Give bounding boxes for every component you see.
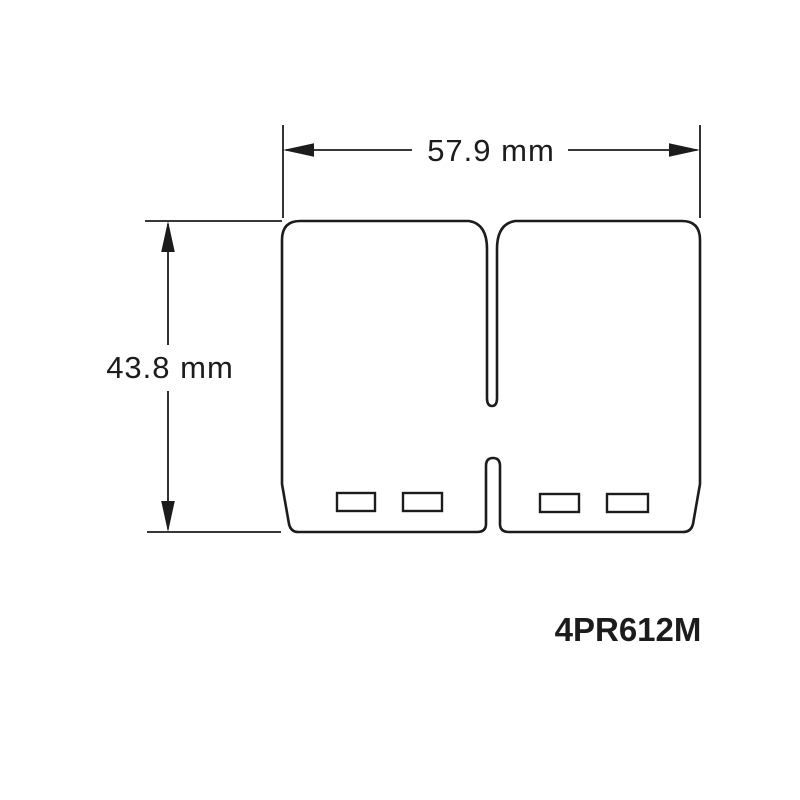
- part-number-label: 4PR612M: [548, 612, 708, 648]
- arrowhead-up-icon: [161, 221, 175, 252]
- reed-petal-drawing: [0, 0, 800, 800]
- width-dimension-label: 57.9 mm: [406, 133, 576, 169]
- height-dimension-label: 43.8 mm: [85, 350, 255, 386]
- mounting-window-1: [337, 493, 375, 511]
- mounting-window-4: [607, 494, 648, 512]
- mounting-window-2: [403, 493, 442, 511]
- arrowhead-right-icon: [669, 143, 700, 157]
- petal-outline: [282, 221, 700, 532]
- reed-petal-drawing-canvas: 57.9 mm 43.8 mm 4PR612M: [0, 0, 800, 800]
- arrowhead-down-icon: [161, 501, 175, 532]
- mounting-window-3: [540, 494, 579, 512]
- petal-outline-group: [282, 221, 700, 532]
- arrowhead-left-icon: [283, 143, 314, 157]
